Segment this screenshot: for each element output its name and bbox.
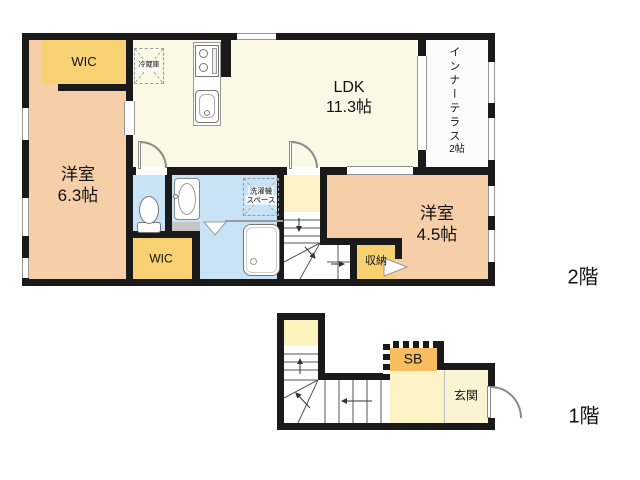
refrigerator-label: 冷蔵庫: [138, 62, 161, 71]
window: [22, 198, 29, 236]
washer-space-line2: スペース: [245, 196, 276, 205]
window: [488, 62, 495, 103]
window: [22, 108, 29, 140]
room-label-western45: 洋室 4.5帖: [417, 203, 458, 246]
wall-dashed: [383, 341, 444, 348]
western45-name: 洋室: [417, 203, 458, 224]
washer-space-label: 洗濯機 スペース: [245, 187, 276, 206]
terrace-glass-door: [417, 56, 427, 150]
window: [237, 33, 276, 40]
door-leaf: [138, 141, 141, 169]
bathtub-drain: [250, 258, 257, 265]
bathroom-partition-line: [225, 220, 283, 222]
toilet-icon: [139, 196, 159, 224]
wall: [437, 363, 495, 370]
window: [488, 230, 495, 262]
room-label-western63: 洋室 6.3帖: [58, 164, 99, 207]
room-label-terrace-size: 2帖: [449, 144, 465, 157]
wall: [488, 363, 495, 387]
stove-panel: [212, 48, 217, 74]
ldk-name: LDK: [326, 78, 372, 98]
window: [488, 186, 495, 216]
stairs-1f: [284, 346, 390, 423]
vanity-basin: [178, 183, 196, 215]
wall: [58, 84, 126, 91]
bath-folding-door-icon: [203, 221, 227, 237]
wall: [192, 238, 200, 279]
room-label-terrace: インナーテラス: [446, 46, 460, 144]
washer-space-line1: 洗濯機: [249, 187, 274, 196]
western45-size: 4.5帖: [417, 224, 458, 245]
sliding-door-western45: [347, 166, 413, 175]
burner-icon: [199, 63, 208, 72]
floor-label-2f: 2階: [567, 266, 598, 291]
bathtub-inner: [246, 227, 277, 273]
ldk-size: 11.3帖: [326, 98, 372, 118]
western63-name: 洋室: [58, 164, 99, 185]
floorplan-canvas: 冷蔵庫 洗濯機 スペース: [0, 0, 640, 480]
hall-2f: [284, 175, 320, 215]
stairs-2f: [284, 212, 404, 280]
room-1f-upper: [284, 320, 318, 346]
wall: [165, 175, 172, 238]
wall: [277, 423, 495, 430]
wall: [277, 313, 284, 430]
wall: [126, 33, 133, 279]
wall: [22, 279, 495, 286]
wall: [22, 33, 29, 286]
entrance-door-arc: [491, 386, 522, 418]
floor-label-1f: 1階: [568, 405, 599, 430]
room-label-wic-bottom: WIC: [149, 252, 172, 267]
burner-icon: [199, 49, 208, 58]
vanity-faucet-icon: [173, 194, 178, 199]
room-label-ldk: LDK 11.3帖: [326, 78, 372, 118]
room-label-wic-top: WIC: [71, 54, 96, 70]
faucet-icon: [204, 110, 210, 116]
room-label-shoe-box: SB: [404, 350, 423, 368]
room-label-entrance: 玄関: [454, 389, 478, 404]
sliding-door-western63: [124, 101, 135, 135]
wall: [221, 40, 231, 77]
entrance-door-leaf: [487, 386, 491, 418]
room-label-storage: 収納: [365, 255, 387, 269]
room-ldk: [133, 40, 418, 168]
window: [22, 258, 29, 278]
western63-size: 6.3帖: [58, 185, 99, 206]
door-leaf: [289, 141, 292, 169]
hall-1f: [390, 371, 444, 423]
window: [488, 118, 495, 160]
